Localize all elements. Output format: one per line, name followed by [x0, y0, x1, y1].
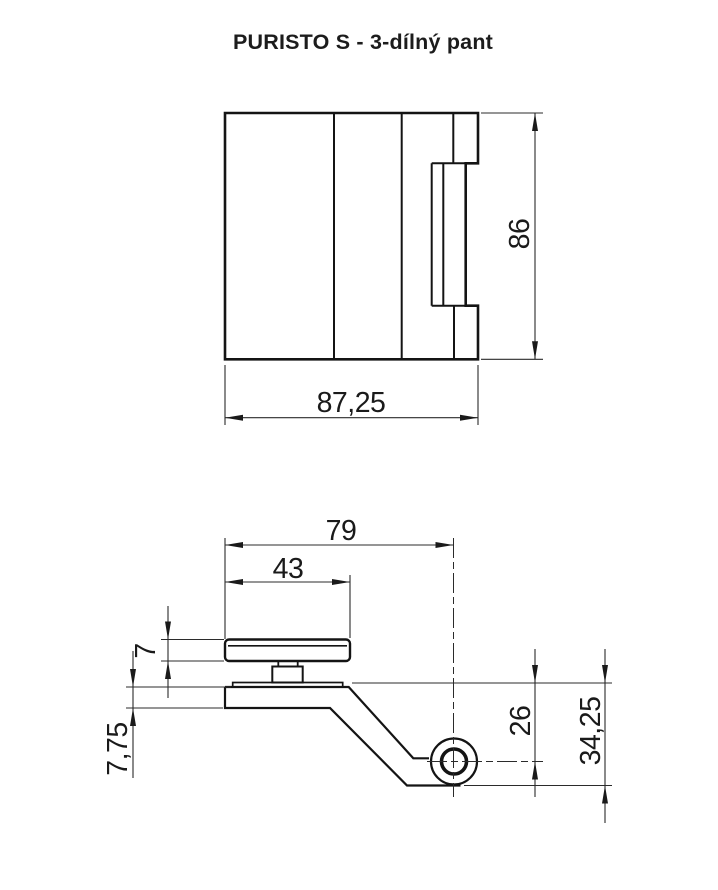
dim-26-label: 26 [505, 706, 537, 737]
dim-43-arrow-left [225, 579, 243, 585]
dim-26-arrow-down [532, 665, 538, 683]
dim-79-label: 79 [326, 515, 357, 547]
dim-86-label: 86 [504, 219, 536, 250]
base-plate-arm-outline [225, 687, 461, 786]
dimension-87-25: 87,25 [225, 365, 478, 425]
dimension-26: 26 [505, 649, 538, 797]
dim-7-label: 7 [130, 643, 162, 658]
drawing-page: PURISTO S - 3-dílný pant 86 87,2 [0, 0, 718, 890]
dimension-34-25: 34,25 [575, 649, 608, 823]
dim-7-arrow-up [165, 661, 171, 679]
dimension-79: 79 [225, 515, 454, 639]
dim-775-arrow-down [130, 669, 136, 687]
dim-3425-arrow-down [602, 665, 608, 683]
dim-43-label: 43 [273, 553, 304, 585]
clamp-pad [225, 640, 350, 662]
dim-775-label: 7,75 [102, 722, 134, 775]
dim-775-extension-lines [126, 687, 231, 708]
dim-26-arrow-up [532, 762, 538, 780]
dim-43-arrow-right [332, 579, 350, 585]
dimension-86: 86 [481, 113, 543, 359]
dim-79-arrow-right [436, 542, 454, 548]
dim-8725-label: 87,25 [317, 387, 386, 419]
dimension-43: 43 [225, 553, 350, 638]
dim-3425-arrow-up [602, 786, 608, 804]
screw-boss [272, 667, 302, 683]
front-view-inner-edges [334, 113, 466, 359]
front-view-outline [225, 113, 478, 359]
dim-86-arrow-down [532, 341, 538, 359]
side-view: 79 43 7 [102, 515, 612, 823]
dim-8725-arrow-right [460, 415, 478, 421]
dim-3425-label: 34,25 [575, 697, 607, 766]
dim-7-extension-lines [161, 640, 224, 662]
dim-8725-arrow-left [225, 415, 243, 421]
dimension-7: 7 [130, 606, 224, 698]
dim-7-arrow-down [165, 622, 171, 640]
technical-drawing-canvas: 86 87,25 [0, 0, 718, 890]
dim-79-arrow-left [225, 542, 243, 548]
front-view: 86 87,25 [225, 113, 543, 425]
dim-86-arrow-up [532, 113, 538, 131]
